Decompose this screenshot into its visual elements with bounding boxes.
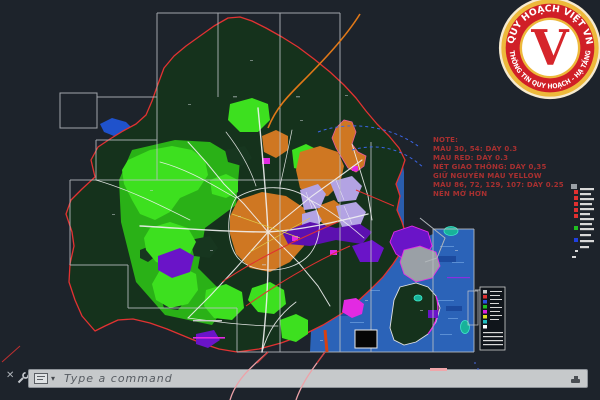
pointer-device-icon[interactable] (571, 376, 581, 384)
red-roads (222, 190, 394, 306)
black-swatch-box (355, 330, 377, 348)
logo-badge: QUY HOẠCH VIỆT VN THÔNG TIN QUY HOẠCH - … (497, 0, 600, 101)
note-line: MÀU 30, 54: DÀY 0.3 (433, 145, 564, 154)
map-label-specks (112, 60, 479, 370)
close-icon[interactable]: ✕ (6, 371, 14, 381)
command-input[interactable]: ▾ Type a command (28, 369, 588, 388)
note-line: NÊN MỜ HƠN (433, 190, 564, 199)
yellow-roads (232, 214, 310, 252)
urban-layer (230, 120, 366, 272)
legend-strip (571, 184, 594, 258)
highway-line (268, 14, 360, 128)
magenta-accents (193, 158, 470, 339)
industrial-zones (158, 222, 438, 348)
islets (414, 227, 470, 334)
scale-lines (193, 320, 222, 321)
logo-letter: V (530, 20, 570, 76)
note-text: NOTE: MÀU 30, 54: DÀY 0.3 MÀU RED: DÀY 0… (433, 136, 564, 199)
highway-segment (325, 330, 327, 352)
command-bar: ✕ ▾ Type a command (0, 366, 600, 392)
chevron-down-icon[interactable]: ▾ (51, 374, 55, 383)
legend-box (468, 287, 505, 350)
vegetation-layer (119, 140, 252, 325)
vegetation-bright (122, 98, 360, 342)
residential-zones (300, 176, 366, 230)
gray-zone (400, 218, 445, 282)
lakes (100, 88, 358, 326)
note-line: NÉT GIAO THÔNG: DÀY 0,35 (433, 163, 564, 172)
drawing-canvas[interactable]: ✕ ▾ Type a command (0, 0, 600, 400)
command-placeholder: Type a command (64, 372, 173, 385)
note-line: MÀU 86, 72, 129, 107: DÀY 0.25 (433, 181, 564, 190)
note-line: NOTE: (433, 136, 564, 145)
command-history-icon[interactable] (34, 373, 48, 384)
road-network (96, 108, 372, 352)
note-line: GIỮ NGUYÊN MÀU YELLOW (433, 172, 564, 181)
note-line: MÀU RED: DÀY 0.3 (433, 154, 564, 163)
dashed-route-arcs (318, 126, 424, 168)
land-region (66, 17, 440, 352)
